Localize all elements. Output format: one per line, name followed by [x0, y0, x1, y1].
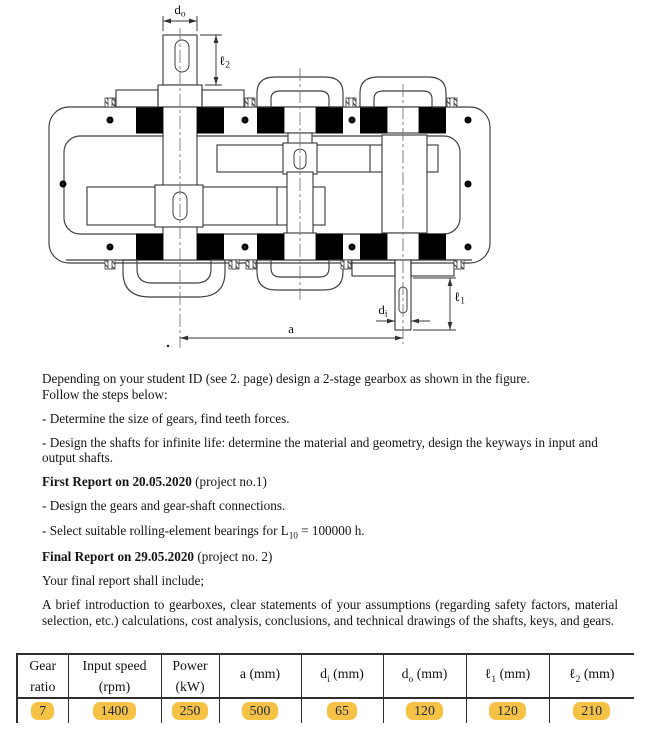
value-l2: 210: [549, 698, 634, 723]
highlighted-value: 120: [406, 702, 443, 720]
parameters-table: Gearratio Input speed(rpm) Power(kW) a (…: [16, 653, 634, 723]
value-di: 65: [301, 698, 383, 723]
document-page: { "figure": { "caption": "2-stage gearbo…: [0, 0, 652, 746]
header-gear-ratio: Gearratio: [17, 654, 68, 698]
header-di: di (mm): [301, 654, 383, 698]
header-power: Power(kW): [161, 654, 219, 698]
value-l1: 120: [466, 698, 549, 723]
highlighted-value: 210: [573, 702, 610, 720]
intro-line-1: Depending on your student ID (see 2. pag…: [42, 371, 530, 386]
intro-paragraph: Depending on your student ID (see 2. pag…: [42, 371, 618, 402]
l10-subscript: 10: [289, 530, 298, 540]
value-power: 250: [161, 698, 219, 723]
output-shaft: [155, 35, 203, 260]
gearbox-figure: do ℓ2 ℓ1 di a: [0, 0, 652, 362]
header-do: do (mm): [383, 654, 466, 698]
highlighted-value: 65: [327, 702, 357, 720]
first-report-line: First Report on 20.05.2020 (project no.1…: [42, 474, 618, 490]
first-report-title: First Report on 20.05.2020: [42, 474, 192, 489]
dim-l2-label: ℓ2: [219, 53, 230, 71]
highlighted-value: 250: [172, 702, 209, 720]
dim-l1-label: ℓ1: [454, 289, 465, 307]
step-design-shafts: - Design the shafts for infinite life: d…: [42, 435, 618, 466]
input-shaft: [382, 107, 427, 330]
step-design-gear-connections: - Design the gears and gear-shaft connec…: [42, 498, 618, 514]
input-shaft-body: [382, 135, 427, 233]
step-determine-gears: - Determine the size of gears, find teet…: [42, 411, 618, 427]
value-input-speed: 1400: [68, 698, 161, 723]
highlighted-value: 1400: [93, 702, 137, 720]
header-a: a (mm): [219, 654, 301, 698]
step-select-bearings: - Select suitable rolling-element bearin…: [42, 523, 618, 541]
header-row: Gearratio Input speed(rpm) Power(kW) a (…: [17, 654, 634, 698]
final-report-intro: Your final report shall include;: [42, 573, 618, 589]
intro-line-2: Follow the steps below:: [42, 387, 168, 402]
instructions-block: Depending on your student ID (see 2. pag…: [42, 371, 618, 637]
header-l1: ℓ1 (mm): [466, 654, 549, 698]
final-report-line: Final Report on 29.05.2020 (project no. …: [42, 549, 618, 565]
value-gear-ratio: 7: [17, 698, 68, 723]
values-row: 7 1400 250 500 65 120 120 210: [17, 698, 634, 723]
dimension-l1: ℓ1: [413, 278, 465, 330]
dim-a-label: a: [288, 321, 294, 336]
report-contents-paragraph: A brief introduction to gearboxes, clear…: [42, 597, 618, 628]
dimension-a: a: [180, 321, 403, 340]
dimension-do: do: [163, 2, 197, 31]
value-a: 500: [219, 698, 301, 723]
highlighted-value: 7: [31, 702, 54, 720]
output-shaft-keyway: [175, 40, 189, 72]
dome-cover-output-bottom: [123, 260, 225, 297]
highlighted-value: 120: [489, 702, 526, 720]
header-input-speed: Input speed(rpm): [68, 654, 161, 698]
dim-do-label: do: [174, 2, 186, 20]
value-do: 120: [383, 698, 466, 723]
stray-dot: [167, 345, 170, 348]
dimension-l2: ℓ2: [200, 35, 230, 85]
highlighted-value: 500: [242, 702, 279, 720]
dim-di-label: di: [378, 302, 388, 320]
header-l2: ℓ2 (mm): [549, 654, 634, 698]
final-report-title: Final Report on 29.05.2020: [42, 549, 194, 564]
